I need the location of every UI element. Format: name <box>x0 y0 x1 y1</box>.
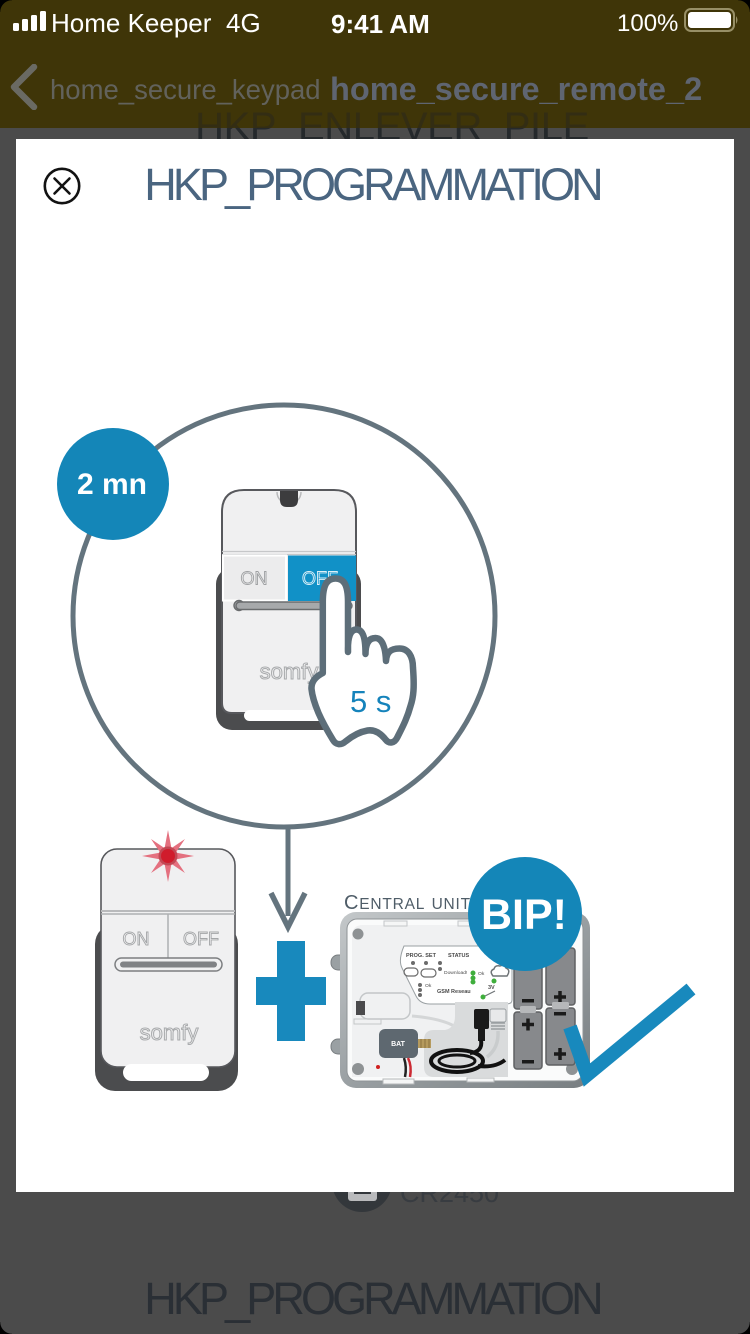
svg-text:CENTRAL UNIT: CENTRAL UNIT <box>344 892 471 914</box>
svg-text:BIP!: BIP! <box>481 891 567 939</box>
svg-text:Ok: Ok <box>425 983 432 989</box>
svg-text:PROG. SET: PROG. SET <box>406 953 437 959</box>
svg-text:BAT: BAT <box>391 1041 406 1048</box>
svg-text:5 s: 5 s <box>350 684 391 719</box>
svg-text:Download!: Download! <box>444 970 467 976</box>
svg-text:2 mn: 2 mn <box>77 468 147 501</box>
svg-text:STATUS: STATUS <box>448 953 470 959</box>
svg-text:somfy: somfy <box>140 1020 199 1045</box>
svg-text:ON: ON <box>123 929 150 949</box>
svg-text:somfy: somfy <box>260 659 319 684</box>
svg-text:3V: 3V <box>488 985 495 991</box>
svg-text:OFF: OFF <box>183 929 219 949</box>
svg-text:ON: ON <box>241 569 268 589</box>
svg-text:Ok: Ok <box>478 971 485 977</box>
svg-text:GSM Reseau: GSM Reseau <box>437 989 471 995</box>
